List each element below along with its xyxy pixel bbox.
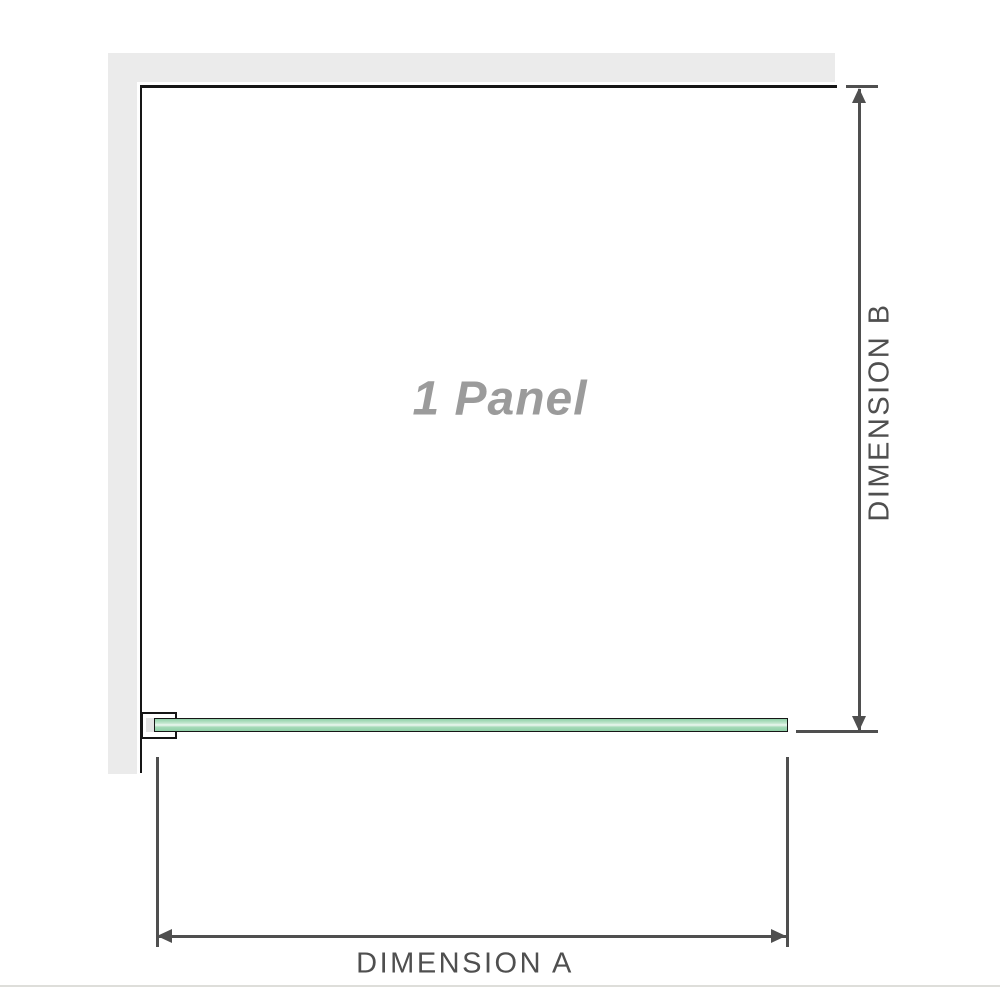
panel-configuration-diagram: 1 Panel DIMENSION B DIMENSION A (0, 0, 1000, 1000)
panel-outline-top (141, 85, 837, 88)
dimension-a-line (158, 935, 786, 938)
glass-panel (154, 718, 788, 732)
arrow-up-icon (852, 88, 866, 103)
panel-count-label: 1 Panel (412, 372, 587, 427)
arrow-down-icon (852, 716, 866, 731)
dimension-a-left-extension (156, 757, 159, 947)
bottom-divider (0, 985, 1000, 987)
arrow-right-icon (771, 929, 786, 943)
dimension-a-right-extension (786, 757, 789, 947)
arrow-left-icon (157, 929, 172, 943)
wall-top-strip (108, 53, 835, 82)
dimension-b-bottom-tick (796, 730, 878, 733)
dimension-b-label: DIMENSION B (864, 302, 897, 521)
dimension-a-label: DIMENSION A (356, 948, 574, 981)
dimension-b-line (858, 89, 861, 731)
wall-left-strip (108, 53, 137, 774)
panel-outline-left (140, 85, 143, 773)
